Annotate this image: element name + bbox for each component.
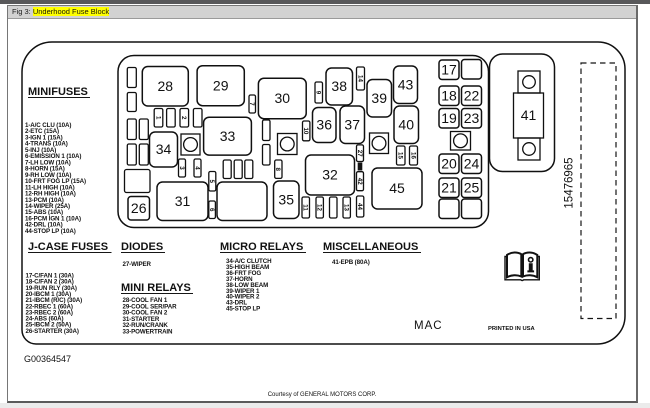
svg-text:19: 19 <box>441 110 457 126</box>
svg-text:32: 32 <box>322 167 338 183</box>
svg-text:27-WIPER: 27-WIPER <box>123 261 152 268</box>
svg-text:16: 16 <box>409 152 416 159</box>
svg-text:3: 3 <box>178 166 185 170</box>
svg-text:MISCELLANEOUS: MISCELLANEOUS <box>323 241 418 253</box>
svg-text:G00364547: G00364547 <box>24 354 71 364</box>
svg-text:MINI RELAYS: MINI RELAYS <box>121 282 191 294</box>
svg-text:35: 35 <box>278 191 294 207</box>
svg-text:26-STARTER (30A): 26-STARTER (30A) <box>26 328 79 335</box>
svg-text:41-EPB (80A): 41-EPB (80A) <box>332 259 370 266</box>
svg-text:28: 28 <box>158 78 174 94</box>
svg-text:30: 30 <box>275 90 291 106</box>
svg-text:27: 27 <box>356 150 363 157</box>
svg-text:26: 26 <box>131 200 147 216</box>
svg-text:41: 41 <box>521 107 537 123</box>
svg-text:13: 13 <box>343 204 350 211</box>
svg-text:20: 20 <box>441 155 457 171</box>
svg-text:8: 8 <box>274 167 281 171</box>
svg-text:9: 9 <box>315 91 322 95</box>
svg-text:39: 39 <box>371 90 387 106</box>
svg-text:38: 38 <box>331 78 347 94</box>
svg-text:12: 12 <box>316 204 323 211</box>
svg-text:5: 5 <box>208 180 215 184</box>
svg-text:44: 44 <box>356 203 363 210</box>
svg-text:18: 18 <box>441 87 457 103</box>
svg-text:42: 42 <box>356 178 363 185</box>
svg-text:MINIFUSES: MINIFUSES <box>28 86 88 98</box>
svg-text:33-POWERTRAIN: 33-POWERTRAIN <box>123 329 174 336</box>
svg-text:45-STOP LP: 45-STOP LP <box>226 306 260 313</box>
svg-text:14: 14 <box>356 75 363 82</box>
svg-text:1: 1 <box>154 116 161 120</box>
svg-text:21: 21 <box>441 179 457 195</box>
svg-text:45: 45 <box>389 180 405 196</box>
svg-text:33: 33 <box>220 128 236 144</box>
svg-text:4: 4 <box>193 166 200 170</box>
svg-text:11: 11 <box>302 204 309 211</box>
svg-text:31: 31 <box>175 193 191 209</box>
svg-text:36: 36 <box>316 117 332 133</box>
svg-text:7: 7 <box>248 102 255 106</box>
svg-text:15476965: 15476965 <box>564 157 576 208</box>
svg-text:J-CASE FUSES: J-CASE FUSES <box>28 241 108 253</box>
svg-text:PRINTED IN USA: PRINTED IN USA <box>488 326 536 332</box>
svg-text:15: 15 <box>397 152 404 159</box>
svg-text:29: 29 <box>213 77 229 93</box>
svg-text:43: 43 <box>398 77 414 93</box>
svg-text:10: 10 <box>302 127 309 134</box>
svg-text:6: 6 <box>208 208 215 212</box>
svg-text:2: 2 <box>180 116 187 120</box>
svg-text:40: 40 <box>398 116 414 132</box>
svg-text:37: 37 <box>344 116 360 132</box>
svg-text:DIODES: DIODES <box>121 241 163 253</box>
svg-text:17: 17 <box>441 61 457 77</box>
svg-text:22: 22 <box>464 87 480 103</box>
svg-text:24: 24 <box>464 155 480 171</box>
svg-text:23: 23 <box>464 110 480 126</box>
svg-text:MICRO RELAYS: MICRO RELAYS <box>220 241 303 253</box>
svg-text:MAC: MAC <box>414 320 443 332</box>
svg-text:34: 34 <box>156 141 172 157</box>
svg-text:25: 25 <box>464 179 480 195</box>
svg-text:Courtesy of GENERAL MOTORS COR: Courtesy of GENERAL MOTORS CORP. <box>268 392 377 398</box>
svg-text:44-STOP LP (10A): 44-STOP LP (10A) <box>25 228 76 235</box>
